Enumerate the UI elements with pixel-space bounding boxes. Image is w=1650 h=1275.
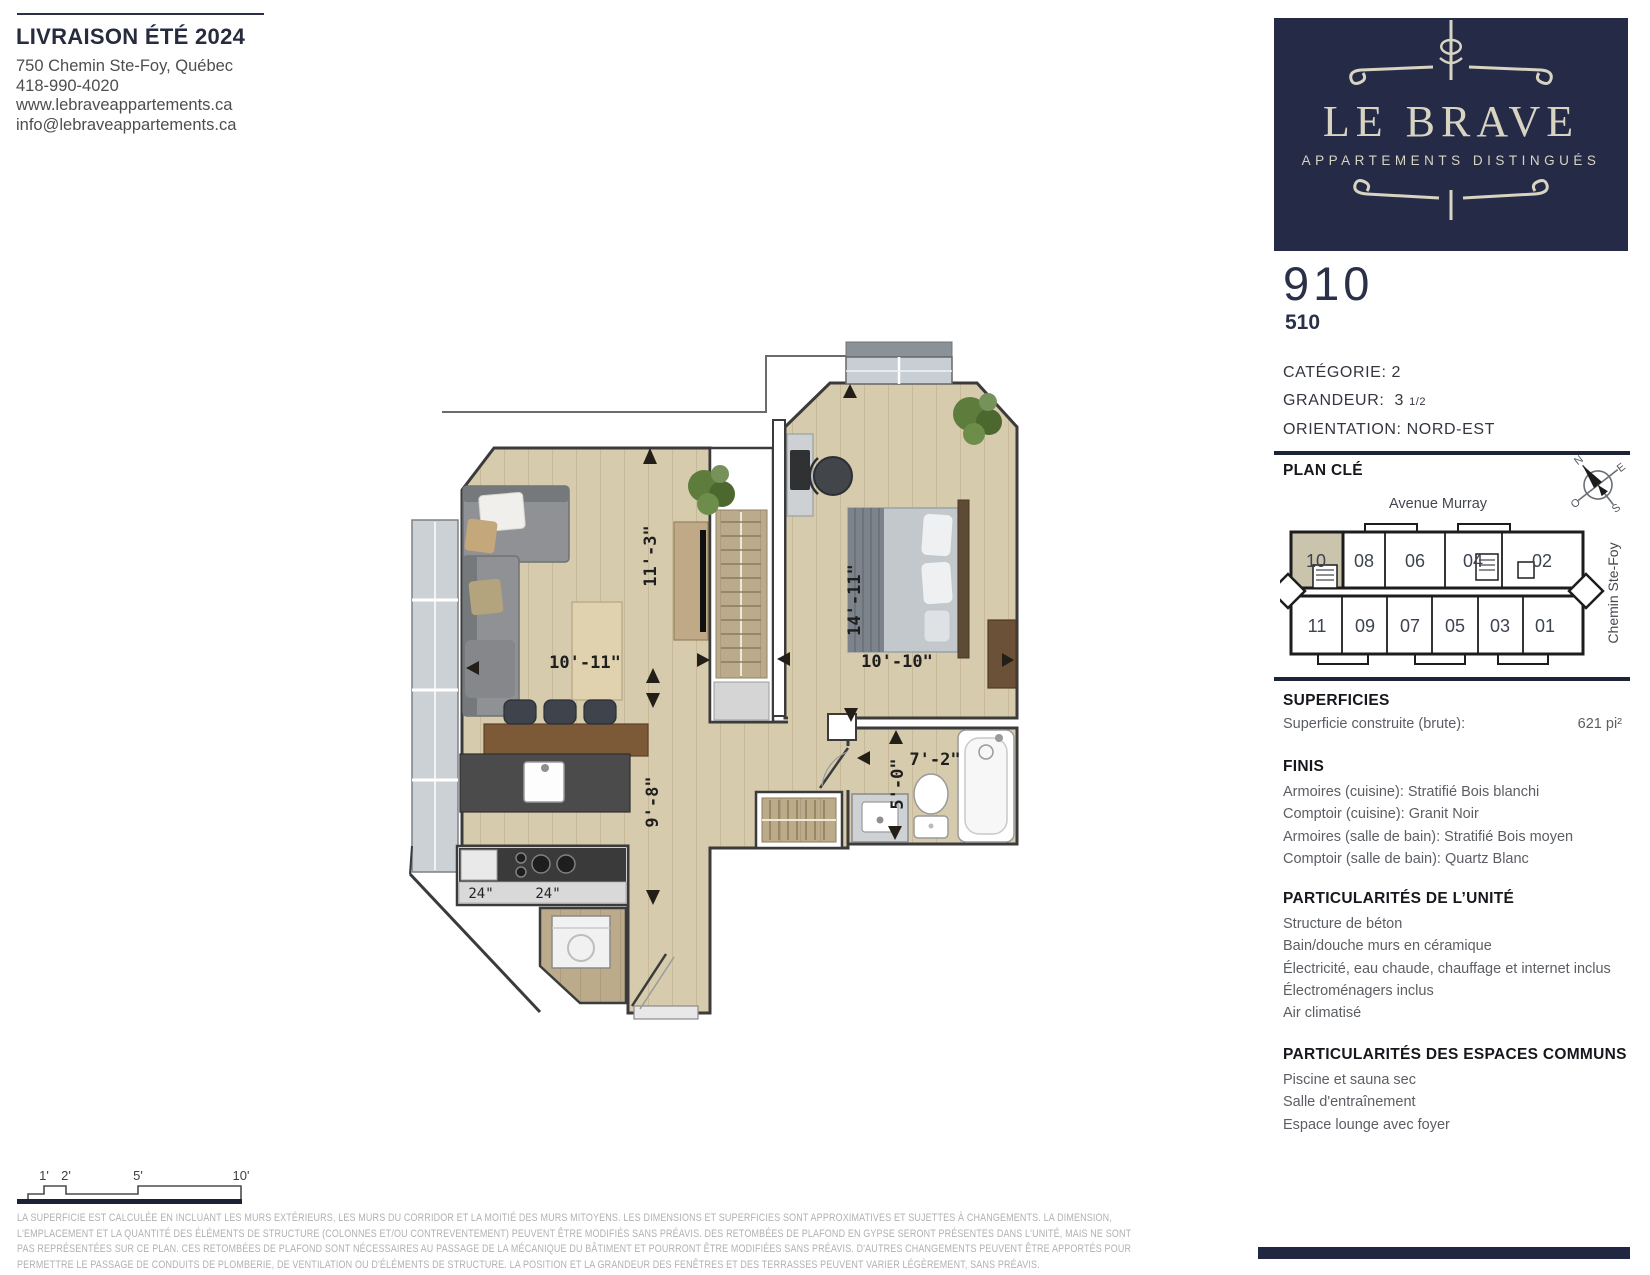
logo-sword-flourish-icon (1301, 18, 1601, 94)
finis-item: Armoires (cuisine): Stratifié Bois blanc… (1283, 781, 1573, 803)
pillow (924, 610, 950, 642)
faucet (541, 764, 549, 772)
dim-bedroom-width: 10'-10" (861, 652, 933, 672)
unit-features-list: Structure de béton Bain/douche murs en c… (1283, 913, 1611, 1024)
svg-text:5': 5' (133, 1168, 143, 1183)
unit-category: CATÉGORIE: 2 (1283, 359, 1495, 387)
shower-head (995, 734, 1003, 742)
unit-feature-item: Électroménagers inclus (1283, 980, 1611, 1002)
header-rule (17, 13, 264, 15)
logo: LE BRAVE APPARTEMENTS DISTINGUÉS (1274, 18, 1628, 251)
website-line: www.lebraveappartements.ca (16, 96, 236, 116)
common-feature-item: Salle d'entraînement (1283, 1091, 1450, 1113)
bar-stools (504, 700, 616, 724)
svg-text:02: 02 (1532, 551, 1552, 571)
desk-chair (814, 457, 852, 495)
disclaimer: LA SUPERFICIE EST CALCULÉE EN INCLUANT L… (17, 1211, 1357, 1273)
dim-bathroom-height: 5'-0" (888, 758, 908, 809)
coffee-table (572, 602, 622, 700)
superficies-label: Superficie construite (brute): (1283, 716, 1465, 732)
unit-feature-item: Structure de béton (1283, 913, 1611, 935)
laundry-closet (540, 908, 626, 1003)
pillow (468, 578, 503, 615)
bedroom-left-wall (773, 420, 785, 716)
logo-name: LE BRAVE (1323, 96, 1579, 147)
finis-item: Comptoir (cuisine): Granit Noir (1283, 803, 1573, 825)
svg-text:1': 1' (39, 1168, 49, 1183)
pillow (921, 513, 954, 557)
disclaimer-line: L'EMPLACEMENT ET LA QUANTITÉ DES ÉLÉMENT… (17, 1227, 1149, 1243)
common-features-list: Piscine et sauna sec Salle d'entraînemen… (1283, 1069, 1450, 1136)
superficies-value: 621 pi² (1440, 716, 1622, 732)
common-feature-item: Piscine et sauna sec (1283, 1069, 1450, 1091)
svg-text:08: 08 (1354, 551, 1374, 571)
unit-info: CATÉGORIE: 2 GRANDEUR: 3 1/2 ORIENTATION… (1283, 359, 1495, 444)
address-line: 750 Chemin Ste-Foy, Québec (16, 57, 236, 77)
unit-feature-item: Électricité, eau chaude, chauffage et in… (1283, 958, 1611, 980)
svg-text:2': 2' (61, 1168, 71, 1183)
outer-wall-line (442, 356, 846, 412)
disclaimer-line: PERMETTRE LE PASSAGE DE CONDUITS DE PLOM… (17, 1258, 1149, 1274)
street-right-label: Chemin Ste-Foy (1605, 542, 1621, 643)
contact-block: 750 Chemin Ste-Foy, Québec 418-990-4020 … (16, 57, 236, 135)
svg-text:06: 06 (1405, 551, 1425, 571)
headboard (958, 500, 969, 658)
kitchen-counter: 24" 24" (457, 846, 628, 905)
svg-text:11: 11 (1308, 616, 1327, 636)
key-plan: Avenue Murray (1280, 492, 1630, 674)
dim-bathroom-width: 7'-2" (909, 750, 960, 770)
finis-item: Armoires (salle de bain): Stratifié Bois… (1283, 826, 1573, 848)
bed (848, 500, 969, 658)
svg-text:10': 10' (233, 1168, 250, 1183)
unit-features-heading: PARTICULARITÉS DE L’UNITÉ (1283, 890, 1514, 908)
tv-console (674, 522, 708, 640)
delivery-title: LIVRAISON ÉTÉ 2024 (16, 24, 245, 50)
unit-feature-item: Bain/douche murs en céramique (1283, 935, 1611, 957)
email-line: info@lebraveappartements.ca (16, 116, 236, 136)
superficies-heading: SUPERFICIES (1283, 692, 1390, 710)
dim-bedroom-height: 14'-11" (845, 564, 865, 636)
svg-text:09: 09 (1355, 616, 1375, 636)
finis-item: Comptoir (salle de bain): Quartz Blanc (1283, 848, 1573, 870)
pillow (921, 561, 954, 605)
common-feature-item: Espace lounge avec foyer (1283, 1114, 1450, 1136)
balcony (846, 342, 952, 357)
floor-plan: 24" 24" (390, 330, 1030, 1030)
finis-heading: FINIS (1283, 758, 1324, 776)
dim-living-height: 11'-3" (641, 525, 661, 586)
brochure-page: LIVRAISON ÉTÉ 2024 750 Chemin Ste-Foy, Q… (0, 0, 1650, 1275)
svg-text:03: 03 (1490, 616, 1510, 636)
finis-list: Armoires (cuisine): Stratifié Bois blanc… (1283, 781, 1573, 870)
svg-text:05: 05 (1445, 616, 1465, 636)
logo-tagline: APPARTEMENTS DISTINGUÉS (1302, 153, 1601, 168)
dim-kitchen-height: 9'-8" (643, 776, 663, 827)
storage-stairs-closet (756, 792, 842, 848)
svg-text:10: 10 (1306, 551, 1326, 571)
key-plan-heading: PLAN CLÉ (1283, 462, 1363, 480)
footer-rule-right (1258, 1247, 1630, 1259)
svg-text:E: E (1615, 461, 1628, 475)
tv (700, 530, 706, 632)
disclaimer-line: LA SUPERFICIE EST CALCULÉE EN INCLUANT L… (17, 1211, 1149, 1227)
refrigerator (461, 850, 497, 880)
divider-superficies (1274, 677, 1630, 681)
pillow (464, 518, 498, 553)
svg-text:04: 04 (1463, 551, 1483, 571)
logo-bottom-flourish-icon (1301, 176, 1601, 228)
phone-line: 418-990-4020 (16, 77, 236, 97)
unit-orientation: ORIENTATION: NORD-EST (1283, 416, 1495, 444)
toilet (914, 774, 948, 838)
dim-living-width: 10'-11" (549, 653, 621, 673)
disclaimer-line: PAS REPRÉSENTÉES SUR CE PLAN. CES RETOMB… (17, 1242, 1149, 1258)
dim-counter-right: 24" (535, 886, 560, 902)
bathtub (958, 730, 1014, 842)
svg-text:07: 07 (1400, 616, 1420, 636)
closet-landing (714, 682, 769, 720)
dim-counter-left: 24" (468, 886, 493, 902)
common-features-heading: PARTICULARITÉS DES ESPACES COMMUNS (1283, 1046, 1627, 1064)
unit-number: 910 (1283, 256, 1373, 311)
computer (790, 450, 810, 490)
footer-rule-left (17, 1199, 242, 1204)
unit-alt-number: 510 (1285, 311, 1320, 335)
unit-feature-item: Air climatisé (1283, 1002, 1611, 1024)
unit-size: GRANDEUR: 3 1/2 (1283, 387, 1495, 417)
street-top-label: Avenue Murray (1389, 496, 1488, 512)
living-window-band (412, 520, 458, 872)
svg-text:01: 01 (1535, 616, 1555, 636)
